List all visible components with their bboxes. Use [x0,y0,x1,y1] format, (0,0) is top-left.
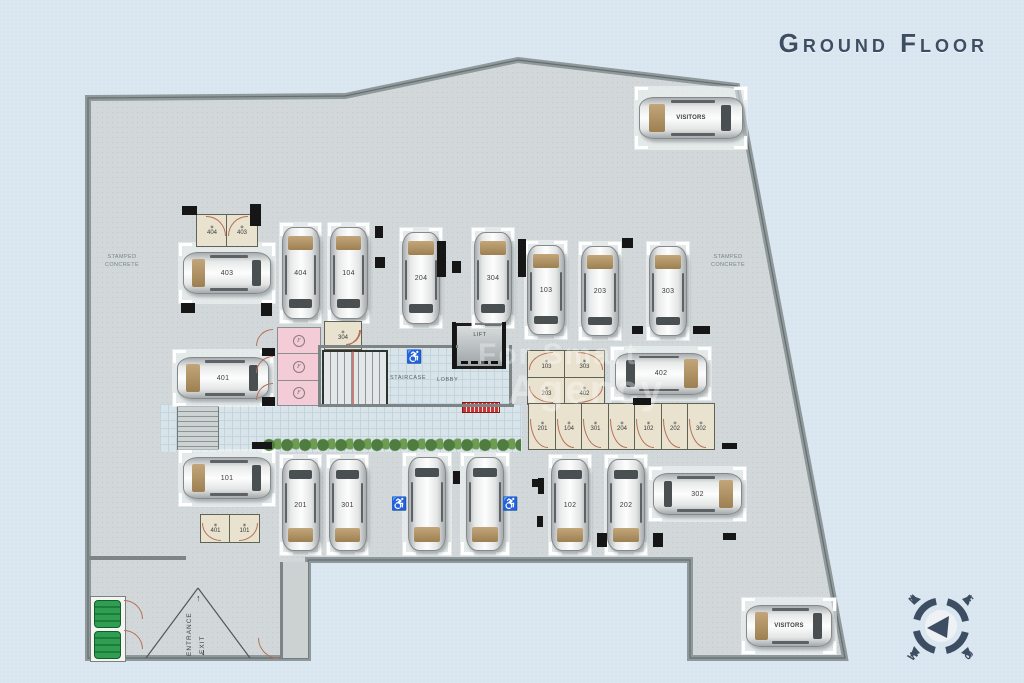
car-side-window [441,482,443,523]
car-side-window [677,476,715,478]
wall-pillar [693,326,710,334]
car-rear-window [558,470,582,479]
car-windshield [414,527,440,542]
car-side-window [405,260,407,300]
watermark-line2: Agency [508,368,665,413]
car-top-view: 103 [527,245,565,335]
wheelchair-icon: ♿ [406,350,422,363]
car-side-window [507,260,509,300]
car-rear-window [813,613,821,639]
car-rear-window [336,470,360,479]
wheelchair-icon: ♿ [391,497,407,510]
car-number-label: 304 [487,275,500,282]
car-side-window [477,260,479,300]
car-top-view: 404 [282,227,320,319]
car-windshield [649,104,665,133]
wall-pillar [182,206,197,215]
wall-pillar [437,241,446,277]
parking-spot-403: 403 [178,242,276,304]
door-swing-arc [530,419,548,448]
car-side-window [333,255,335,295]
spot-corner-marker [635,136,648,149]
car-top-view [466,457,504,551]
room-letter-badge: F [293,335,305,347]
car-rear-window [664,481,673,507]
parking-spot-203: 203 [578,241,622,341]
parking-spot-accessible-1 [402,452,452,556]
car-side-window [671,133,716,135]
parking-spot-302: 302 [648,466,747,522]
car-top-view: 104 [330,227,368,319]
car-side-window [210,255,248,257]
wall-pillar [502,322,506,369]
generator-unit [94,631,121,659]
car-number-label: 103 [540,287,553,294]
car-side-window [677,509,715,511]
page-title: Ground Floor [779,28,988,59]
wheelchair-icon: ♿ [502,497,518,510]
car-rear-window [337,299,361,308]
car-top-view: 202 [607,459,645,551]
car-windshield [186,364,200,393]
wall-pillar [518,239,526,277]
car-rear-window [721,105,731,131]
car-windshield [288,528,314,542]
room-letter-badge: F [293,361,305,373]
utility-room: F [277,353,321,381]
car-number-label: 101 [221,475,234,482]
car-side-window [285,255,287,295]
wall-pillar [262,397,275,406]
car-rear-window [252,465,261,491]
car-side-window [614,273,616,312]
door-swing-arc [228,216,248,236]
door-swing-arc [557,419,574,448]
car-rear-window [409,304,433,313]
car-side-window [285,483,287,523]
entrance-wall-column [283,562,308,658]
car-top-view: 302 [653,473,742,515]
wall-pillar [452,322,456,369]
parking-spot-visitors-top: VISITORS [634,86,748,150]
car-side-window [210,288,248,290]
interior-wall [318,345,458,348]
car-windshield [655,255,681,269]
compass-north-label: N [907,593,921,607]
car-rear-window [656,317,680,326]
car-side-window [682,273,684,312]
car-windshield [533,254,559,268]
car-number-label: 201 [294,502,307,509]
car-number-label: 404 [294,270,307,277]
car-top-view: 204 [402,232,440,324]
car-top-view: 301 [329,459,367,551]
car-rear-window [415,468,439,477]
wall-pillar [633,398,651,405]
parking-spot-103: 103 [524,240,568,340]
staircase-label: STAIRCASE [390,375,426,381]
wall-pillar [632,326,643,334]
car-top-view: 401 [177,357,269,399]
wall-pillar [250,204,261,226]
car-side-window [671,100,716,102]
car-windshield [288,236,314,250]
interior-wall [318,404,514,407]
storage-room-404: ◉404 [196,214,228,247]
parking-spot-202: 202 [604,454,648,556]
spot-corner-marker [734,136,747,149]
up-arrow-icon: ↑ [196,594,201,603]
car-side-window [499,482,501,523]
generator-housing [90,596,126,662]
door-swing-arc [239,523,258,541]
door-swing-arc [583,419,601,448]
stamped-concrete-label-left: STAMPED CONCRETE [98,254,146,269]
car-side-window [560,272,562,311]
storage-room-101: ◉101 [229,514,260,543]
door-swing-arc [689,419,706,448]
car-number-label: 401 [217,375,230,382]
storage-room-202: ◉202 [661,403,689,450]
compass-west-label: W [906,647,922,663]
room-letter-badge: F [293,387,305,399]
stamped-concrete-label-right: STAMPED CONCRETE [704,254,752,269]
car-side-window [210,493,248,495]
car-number-label: 104 [342,270,355,277]
wall-pillar [262,348,275,356]
floor-plan: LIFT Ground Floor STAMPED CONCRETE STAMP… [0,0,1024,683]
wall-pillar [453,471,460,484]
wall-pillar [597,533,607,547]
parking-spot-303: 303 [646,241,690,341]
wall-pillar [722,443,737,449]
car-number-label: VISITORS [676,115,706,121]
hedge-planting-strip [263,437,521,452]
car-rear-window [614,470,638,479]
car-windshield [408,241,434,255]
wall-pillar [452,261,461,273]
car-side-window [469,482,471,523]
car-top-view: 102 [551,459,589,551]
storage-room-401: ◉401 [200,514,231,543]
car-rear-window [252,260,261,286]
car-side-window [411,482,413,523]
car-top-view: 303 [649,246,687,336]
car-rear-window [534,316,558,325]
compass-east-label: E [961,593,975,607]
parking-spot-404: 404 [279,222,322,324]
stair-handrail [352,351,354,405]
interior-wall [280,562,283,658]
car-top-view: VISITORS [746,605,832,647]
parking-spot-201: 201 [279,454,322,556]
utility-room: F [277,327,321,354]
car-rear-window [481,304,505,313]
car-side-window [210,460,248,462]
car-side-window [314,255,316,295]
door-swing-arc [206,216,226,236]
car-windshield [719,480,733,509]
car-windshield [472,527,498,542]
ramp-treads [177,406,219,450]
wall-pillar [532,479,540,487]
car-windshield [684,359,698,388]
interior-wall [318,345,321,407]
wall-pillar [181,303,195,313]
generator-unit [94,600,121,628]
parking-spot-101: 101 [178,449,276,507]
car-side-window [772,608,809,610]
car-top-view: 201 [282,459,320,551]
car-windshield [587,255,613,269]
car-rear-window [289,470,313,479]
car-rear-window [473,468,497,477]
car-number-label: 303 [662,288,675,295]
parking-spot-104: 104 [327,222,370,324]
car-top-view: 304 [474,232,512,324]
car-side-window [530,272,532,311]
parking-spot-102: 102 [548,454,592,556]
car-side-window [361,483,363,523]
car-side-window [314,483,316,523]
car-windshield [192,464,206,493]
car-windshield [480,241,506,255]
car-side-window [362,255,364,295]
car-number-label: 203 [594,288,607,295]
down-arrow-icon: ↓ [201,648,206,657]
car-top-view: 101 [183,457,271,499]
car-side-window [610,483,612,523]
utility-room: F [277,380,321,406]
car-side-window [639,356,679,358]
car-windshield [613,528,639,542]
door-swing-arc [636,419,654,448]
car-number-label: 102 [564,502,577,509]
car-top-view: VISITORS [639,97,743,139]
car-rear-window [588,317,612,326]
car-number-label: 202 [620,502,633,509]
car-side-window [772,641,809,643]
lobby-label: LOBBY [437,377,458,383]
car-top-view: 203 [581,246,619,336]
car-rear-window [289,299,313,308]
car-top-view: 403 [183,252,271,294]
car-windshield [192,259,206,288]
car-side-window [652,273,654,312]
storage-room-302: ◉302 [687,403,715,450]
door-swing-arc [663,419,680,448]
wall-pillar [375,257,385,268]
car-windshield [335,528,361,542]
car-number-label: 204 [415,275,428,282]
wall-pillar [252,442,272,449]
wall-pillar [537,516,543,527]
car-windshield [336,236,362,250]
car-top-view [408,457,446,551]
interior-wall [88,556,186,560]
parking-spot-301: 301 [326,454,369,556]
compass-rose-icon: N E W S [898,583,984,669]
compass-south-label: S [961,649,975,663]
car-windshield [557,528,583,542]
staircase [322,350,388,406]
car-windshield [755,612,768,641]
wall-pillar [622,238,633,248]
car-side-window [332,483,334,523]
car-number-label: 403 [221,270,234,277]
wall-pillar [653,533,663,547]
wall-pillar [261,303,272,316]
car-side-window [205,393,245,395]
car-side-window [584,273,586,312]
car-side-window [584,483,586,523]
door-swing-arc [610,419,627,448]
car-side-window [554,483,556,523]
parking-spot-visitors-bottom: VISITORS [741,597,837,655]
door-swing-arc [202,523,221,541]
wall-pillar [375,226,383,238]
car-side-window [205,360,245,362]
wall-pillar [723,533,736,540]
car-side-window [640,483,642,523]
parking-spot-304: 304 [471,227,515,329]
car-number-label: VISITORS [774,623,804,629]
entrance-label: ENTRANCE [186,600,193,656]
car-number-label: 301 [341,502,354,509]
car-number-label: 302 [691,491,704,498]
